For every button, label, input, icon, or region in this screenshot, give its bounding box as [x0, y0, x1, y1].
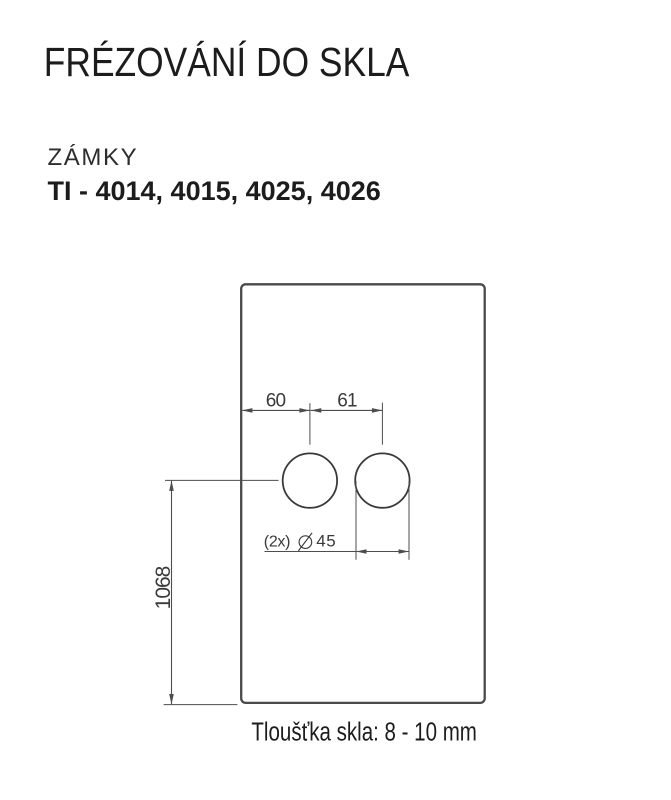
svg-text:45: 45: [316, 531, 336, 550]
svg-text:ZÁMKY: ZÁMKY: [48, 144, 139, 171]
svg-text:1068: 1068: [152, 566, 175, 609]
svg-text:Tloušťka skla: 8 - 10 mm: Tloušťka skla: 8 - 10 mm: [251, 717, 476, 746]
svg-text:FRÉZOVÁNÍ DO SKLA: FRÉZOVÁNÍ DO SKLA: [44, 39, 410, 85]
svg-text:61: 61: [337, 391, 357, 412]
svg-text:(2x): (2x): [264, 533, 290, 550]
svg-text:TI - 4014, 4015, 4025, 4026: TI - 4014, 4015, 4025, 4026: [48, 176, 381, 206]
svg-text:60: 60: [266, 391, 286, 412]
